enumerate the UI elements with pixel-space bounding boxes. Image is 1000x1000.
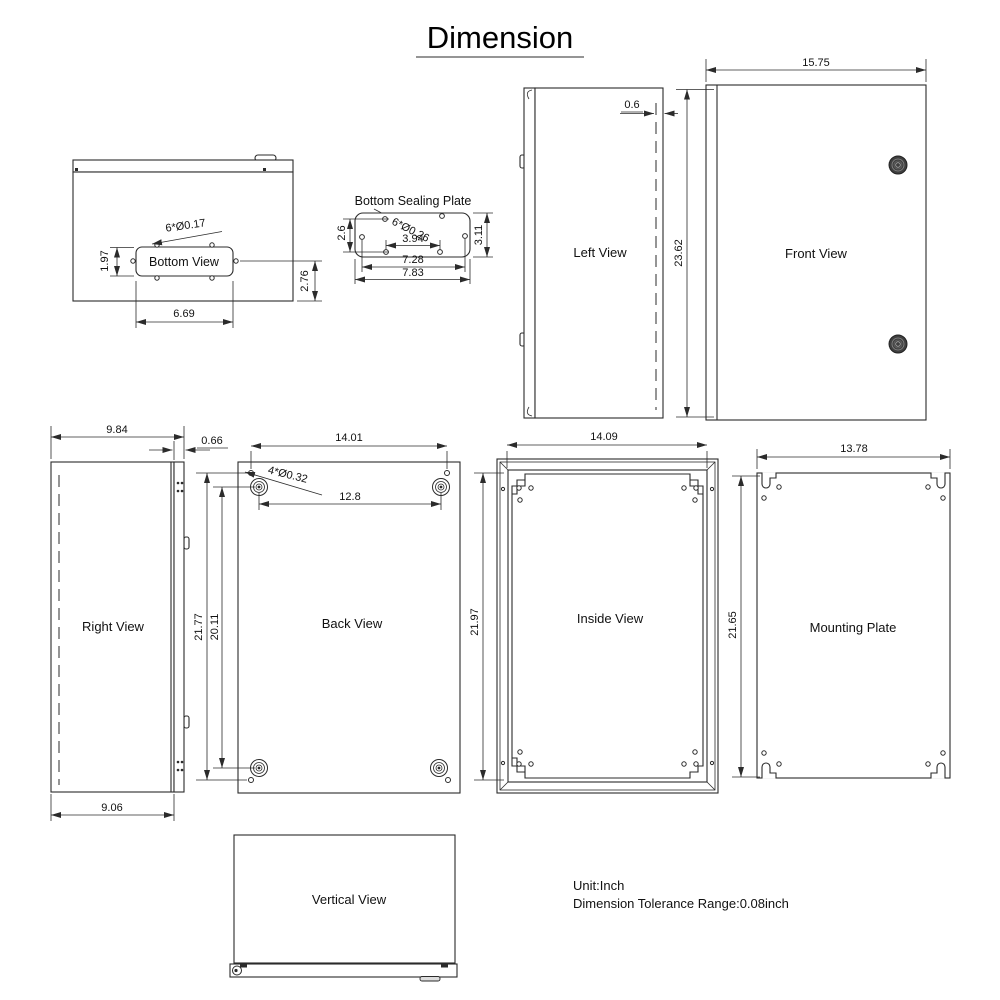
plate-hole xyxy=(518,750,522,754)
dim-mounting-plate-height: 21.65 xyxy=(727,611,739,639)
dim-bottom-view-side-offset: 2.76 xyxy=(299,270,311,291)
right-view-label: Right View xyxy=(82,619,145,634)
latch-mark xyxy=(263,168,266,171)
plate-hole xyxy=(682,486,686,490)
wall-bracket xyxy=(433,479,450,496)
screw-dot xyxy=(181,761,184,764)
page-title: Dimension xyxy=(427,20,573,55)
hole xyxy=(360,235,365,240)
dim-left-view-door-edge: 0.6 xyxy=(624,99,639,111)
plate-hole xyxy=(518,498,522,502)
dim-inside-view-height: 21.97 xyxy=(469,608,481,636)
plate-hole xyxy=(777,485,781,489)
vertical-view: Vertical View xyxy=(230,835,457,981)
back-view: 4*Ø0.32 14.01 12.8 21.77 20.11 Back View xyxy=(193,432,460,793)
plate-hole xyxy=(926,485,930,489)
hole xyxy=(438,250,443,255)
hole xyxy=(234,259,238,263)
mounting-plate: 13.78 21.65 Mounting Plate xyxy=(727,443,950,779)
notes-block: Unit:Inch Dimension Tolerance Range:0.08… xyxy=(573,878,789,911)
plate-hole xyxy=(682,762,686,766)
dim-bottom-view-cutout-height: 1.97 xyxy=(99,250,111,271)
note-tolerance: Dimension Tolerance Range:0.08inch xyxy=(573,896,789,911)
left-view-label: Left View xyxy=(573,245,627,260)
inside-view: 14.09 21.97 Inside View xyxy=(469,431,718,793)
hole xyxy=(155,276,159,280)
bottom-view: 6*Ø0.17 1.97 2.76 6.69 Bottom View xyxy=(73,155,322,328)
screw-dot xyxy=(181,482,184,485)
plate-hole xyxy=(926,762,930,766)
latch-mark xyxy=(75,168,78,171)
frame-hole xyxy=(710,487,713,490)
dim-inside-view-width: 14.09 xyxy=(590,431,618,443)
plate-hole xyxy=(529,486,533,490)
screw-dot xyxy=(181,769,184,772)
dim-sealing-plate-row-gap: 2.6 xyxy=(336,225,348,240)
plate-hole xyxy=(941,496,945,500)
dim-sealing-plate-width: 7.83 xyxy=(402,267,423,279)
hinge xyxy=(184,537,189,549)
front-view-label: Front View xyxy=(785,246,848,261)
left-view-door-strip xyxy=(524,88,535,418)
plate-hole xyxy=(777,762,781,766)
dim-right-view-body-depth: 9.06 xyxy=(101,802,122,814)
inside-view-label: Inside View xyxy=(577,611,644,626)
dim-right-view-flange: 0.66 xyxy=(201,435,222,447)
plate-hole xyxy=(694,486,698,490)
dim-front-view-width: 15.75 xyxy=(802,57,830,69)
hole xyxy=(440,214,445,219)
screw-dot xyxy=(177,761,180,764)
dim-right-view-depth: 9.84 xyxy=(106,424,127,436)
frame-hole xyxy=(501,487,504,490)
bottom-view-door-strip xyxy=(73,160,293,172)
hole xyxy=(446,778,451,783)
note-unit: Unit:Inch xyxy=(573,878,624,893)
vertical-view-door-strip xyxy=(230,964,457,977)
dim-back-view-hole-height: 21.77 xyxy=(193,613,205,641)
dim-sealing-plate-side-span: 7.28 xyxy=(402,254,423,266)
plate-hole xyxy=(762,751,766,755)
dim-mounting-plate-width: 13.78 xyxy=(840,443,868,455)
plate-hole xyxy=(693,498,697,502)
hole xyxy=(445,471,450,476)
left-view: 0.6 Left View xyxy=(520,88,678,418)
bottom-view-label: Bottom View xyxy=(149,255,220,269)
dim-back-view-bracket-height: 20.11 xyxy=(209,614,221,641)
hole xyxy=(463,234,468,239)
plate-hole xyxy=(693,750,697,754)
hole xyxy=(210,243,214,247)
plate-hole xyxy=(694,762,698,766)
dim-sealing-plate-height: 3.11 xyxy=(473,225,485,246)
title-block: Dimension xyxy=(416,20,584,57)
dim-bottom-view-cutout-width: 6.69 xyxy=(173,308,194,320)
plate-hole xyxy=(529,762,533,766)
wall-bracket xyxy=(431,760,448,777)
hole xyxy=(249,778,254,783)
lock-knob xyxy=(889,335,907,353)
dim-sealing-plate-inner-span: 3.94 xyxy=(402,233,423,245)
bottom-sealing-plate: Bottom Sealing Plate 6*Ø0.26 2.6 3.94 3.… xyxy=(336,194,493,284)
dim-front-view-height: 23.62 xyxy=(673,239,685,267)
plate-hole xyxy=(941,751,945,755)
hole xyxy=(131,259,135,263)
mounting-plate-label: Mounting Plate xyxy=(810,620,897,635)
handle-tab xyxy=(420,977,440,982)
frame-hole xyxy=(710,761,713,764)
plate-hole xyxy=(762,496,766,500)
dim-back-view-bracket-span: 12.8 xyxy=(339,491,360,503)
right-view-door-strip xyxy=(174,462,184,792)
back-view-label: Back View xyxy=(322,616,383,631)
frame-hole xyxy=(501,761,504,764)
hinge xyxy=(184,716,189,728)
screw-dot xyxy=(177,769,180,772)
hole xyxy=(210,276,214,280)
plate-hole xyxy=(517,486,521,490)
bottom-view-body xyxy=(73,172,293,301)
lock-knob xyxy=(889,156,907,174)
screw-dot xyxy=(177,490,180,493)
latch-mark xyxy=(441,964,448,968)
drawing-svg: Dimension 6*Ø0.17 1.97 2.76 6.69 Bottom xyxy=(0,0,1000,1000)
bottom-sealing-plate-label: Bottom Sealing Plate xyxy=(355,194,472,208)
screw-dot xyxy=(181,490,184,493)
front-view: Front View 15.75 23.62 xyxy=(673,57,926,420)
screw-dot xyxy=(177,482,180,485)
vertical-view-label: Vertical View xyxy=(312,892,387,907)
dim-back-view-width: 14.01 xyxy=(335,432,363,444)
hinge-pin-center xyxy=(234,969,237,972)
latch-mark xyxy=(240,964,247,968)
plate-hole xyxy=(517,762,521,766)
dimension-drawing: Dimension 6*Ø0.17 1.97 2.76 6.69 Bottom xyxy=(0,0,1000,1000)
